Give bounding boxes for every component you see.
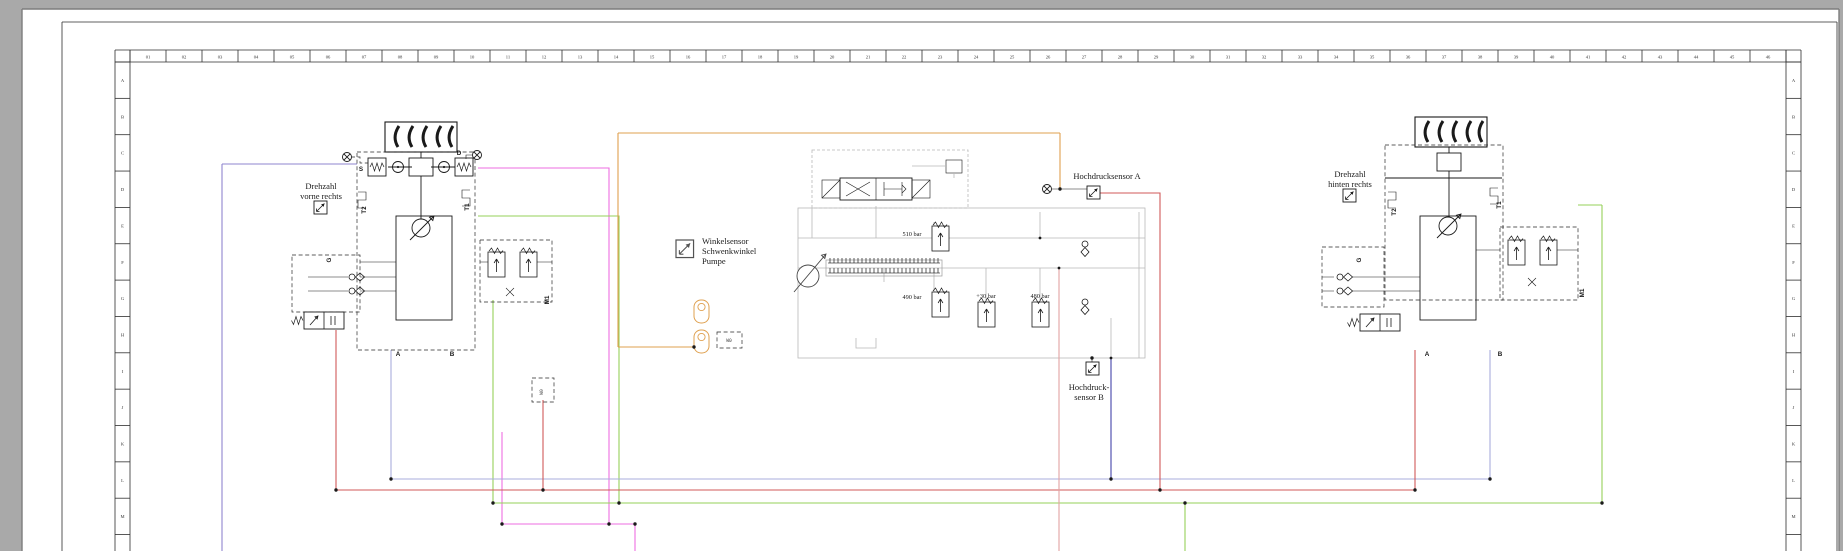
ruler-label: M <box>1791 514 1795 519</box>
ruler-label: C <box>121 151 124 156</box>
ruler-label: 18 <box>758 54 763 59</box>
right-assembly-label: Drehzahl <box>1334 169 1366 179</box>
ruler-label: 43 <box>1658 54 1663 59</box>
component-tag: W0 <box>726 338 732 344</box>
port-t2: T2 <box>1391 208 1398 216</box>
accumulator-icon <box>694 300 709 323</box>
port-d: D <box>457 150 462 157</box>
ruler-label: B <box>121 114 124 119</box>
ruler-label: 14 <box>614 54 619 59</box>
measure-point-icon <box>1043 185 1052 194</box>
ruler-label: 29 <box>1154 54 1159 59</box>
ruler-label: E <box>1792 223 1795 228</box>
angle-sensor-icon <box>676 240 694 258</box>
ruler-label: 15 <box>650 54 655 59</box>
measure-point-icon <box>343 153 352 162</box>
flush-relief-valve-icon <box>1540 236 1557 265</box>
ruler-label: 13 <box>578 54 583 59</box>
ruler-label: E <box>121 223 124 228</box>
port-a: A <box>396 351 401 358</box>
document-page[interactable] <box>22 9 1839 551</box>
left-assembly-label: Drehzahl <box>305 181 337 191</box>
ruler-label: 44 <box>1694 54 1699 59</box>
sensor-a-label: Hochdrucksensor A <box>1073 171 1141 181</box>
relief-valve-490 <box>932 288 949 317</box>
ruler-label: 20 <box>830 54 835 59</box>
port-g: G <box>326 257 333 262</box>
ruler-label: M <box>120 514 124 519</box>
pressure-sensor-icon <box>1087 186 1100 199</box>
svg-text:hinten rechts: hinten rechts <box>1328 179 1372 189</box>
relief-valve-480 <box>1032 298 1049 327</box>
ruler-label: 11 <box>506 54 511 59</box>
relief-valve-510 <box>932 222 949 251</box>
tire-icon <box>1415 117 1487 147</box>
accumulator-icon <box>694 330 709 353</box>
ruler-label: 06 <box>326 54 331 59</box>
ruler-label: 30 <box>1190 54 1195 59</box>
pressure-30: +30 bar <box>976 293 996 300</box>
pump-label: Winkelsensor <box>702 236 749 246</box>
pressure-sensor-icon <box>1086 362 1099 375</box>
svg-text:Schwenkwinkel: Schwenkwinkel <box>702 246 757 256</box>
relief-valve-30 <box>978 298 995 327</box>
ruler-label: 03 <box>218 54 223 59</box>
ruler-label: 12 <box>542 54 547 59</box>
ruler-label: 33 <box>1298 54 1303 59</box>
sensor-b-label: Hochdruck- <box>1069 382 1110 392</box>
pressure-490: 490 bar <box>902 294 922 301</box>
ruler-label: 42 <box>1622 54 1627 59</box>
ruler-label: 24 <box>974 54 979 59</box>
ruler-label: 32 <box>1262 54 1267 59</box>
ruler-label: 35 <box>1370 54 1375 59</box>
brake-s-icon <box>368 158 386 176</box>
component-tag: W0 <box>539 389 545 395</box>
pressure-480: 480 bar <box>1030 293 1050 300</box>
port-t2: T2 <box>361 206 368 214</box>
ruler-label: 22 <box>902 54 907 59</box>
port-t1: T1 <box>1496 201 1503 209</box>
ruler-label: 17 <box>722 54 727 59</box>
ruler-label: 07 <box>362 54 367 59</box>
svg-text:vorne rechts: vorne rechts <box>300 191 342 201</box>
ruler-label: 05 <box>290 54 295 59</box>
ruler-label: 28 <box>1118 54 1123 59</box>
port-m1: M1 <box>544 295 551 304</box>
port-m1: M1 <box>1579 288 1586 297</box>
ruler-label: 34 <box>1334 54 1339 59</box>
port-a: A <box>1425 351 1430 358</box>
ruler-label: 27 <box>1082 54 1087 59</box>
ruler-label: 10 <box>470 54 475 59</box>
port-s: S <box>359 166 363 173</box>
ruler-label: 23 <box>938 54 943 59</box>
ruler-label: 39 <box>1514 54 1519 59</box>
ruler-label: 08 <box>398 54 403 59</box>
ruler-label: B <box>1792 114 1795 119</box>
svg-text:sensor B: sensor B <box>1074 392 1104 402</box>
flush-relief-valve-icon <box>520 248 537 277</box>
ruler-label: 31 <box>1226 54 1231 59</box>
ruler-label: 01 <box>146 54 151 59</box>
tire-icon <box>385 122 457 152</box>
ruler-label: 04 <box>254 54 259 59</box>
ruler-label: F <box>1792 260 1795 265</box>
speed-sensor-icon <box>314 201 327 214</box>
ruler-label: 36 <box>1406 54 1411 59</box>
ruler-label: 26 <box>1046 54 1051 59</box>
schematic-canvas[interactable]: 0102030405060708091011121314151617181920… <box>0 0 1843 551</box>
port-b: B <box>450 351 455 358</box>
ruler-label: 19 <box>794 54 799 59</box>
ruler-label: C <box>1792 151 1795 156</box>
measure-point-icon <box>473 151 482 160</box>
ruler-label: 02 <box>182 54 187 59</box>
ruler-label: 40 <box>1550 54 1555 59</box>
ruler-label: L <box>121 478 124 483</box>
brake-d-icon <box>455 158 473 176</box>
port-t1: T1 <box>464 203 471 211</box>
ruler-label: 25 <box>1010 54 1015 59</box>
pressure-510: 510 bar <box>902 231 922 238</box>
ruler-label: L <box>1792 478 1795 483</box>
flush-relief-valve-icon <box>488 248 505 277</box>
flush-relief-valve-icon <box>1508 236 1525 265</box>
svg-text:Pumpe: Pumpe <box>702 256 726 266</box>
port-b: B <box>1498 351 1503 358</box>
speed-sensor-icon <box>1343 189 1356 202</box>
ruler-label: F <box>121 260 124 265</box>
ruler-label: 46 <box>1766 54 1771 59</box>
port-g: G <box>1356 257 1363 262</box>
ruler-label: J <box>122 405 124 410</box>
ruler-label: 09 <box>434 54 439 59</box>
ruler-label: 41 <box>1586 54 1591 59</box>
ruler-label: J <box>1793 405 1795 410</box>
ruler-label: 37 <box>1442 54 1447 59</box>
schematic-viewer-window: 0102030405060708091011121314151617181920… <box>0 0 1843 551</box>
ruler-label: 21 <box>866 54 871 59</box>
ruler-label: 16 <box>686 54 691 59</box>
ruler-label: 45 <box>1730 54 1735 59</box>
ruler-label: 38 <box>1478 54 1483 59</box>
